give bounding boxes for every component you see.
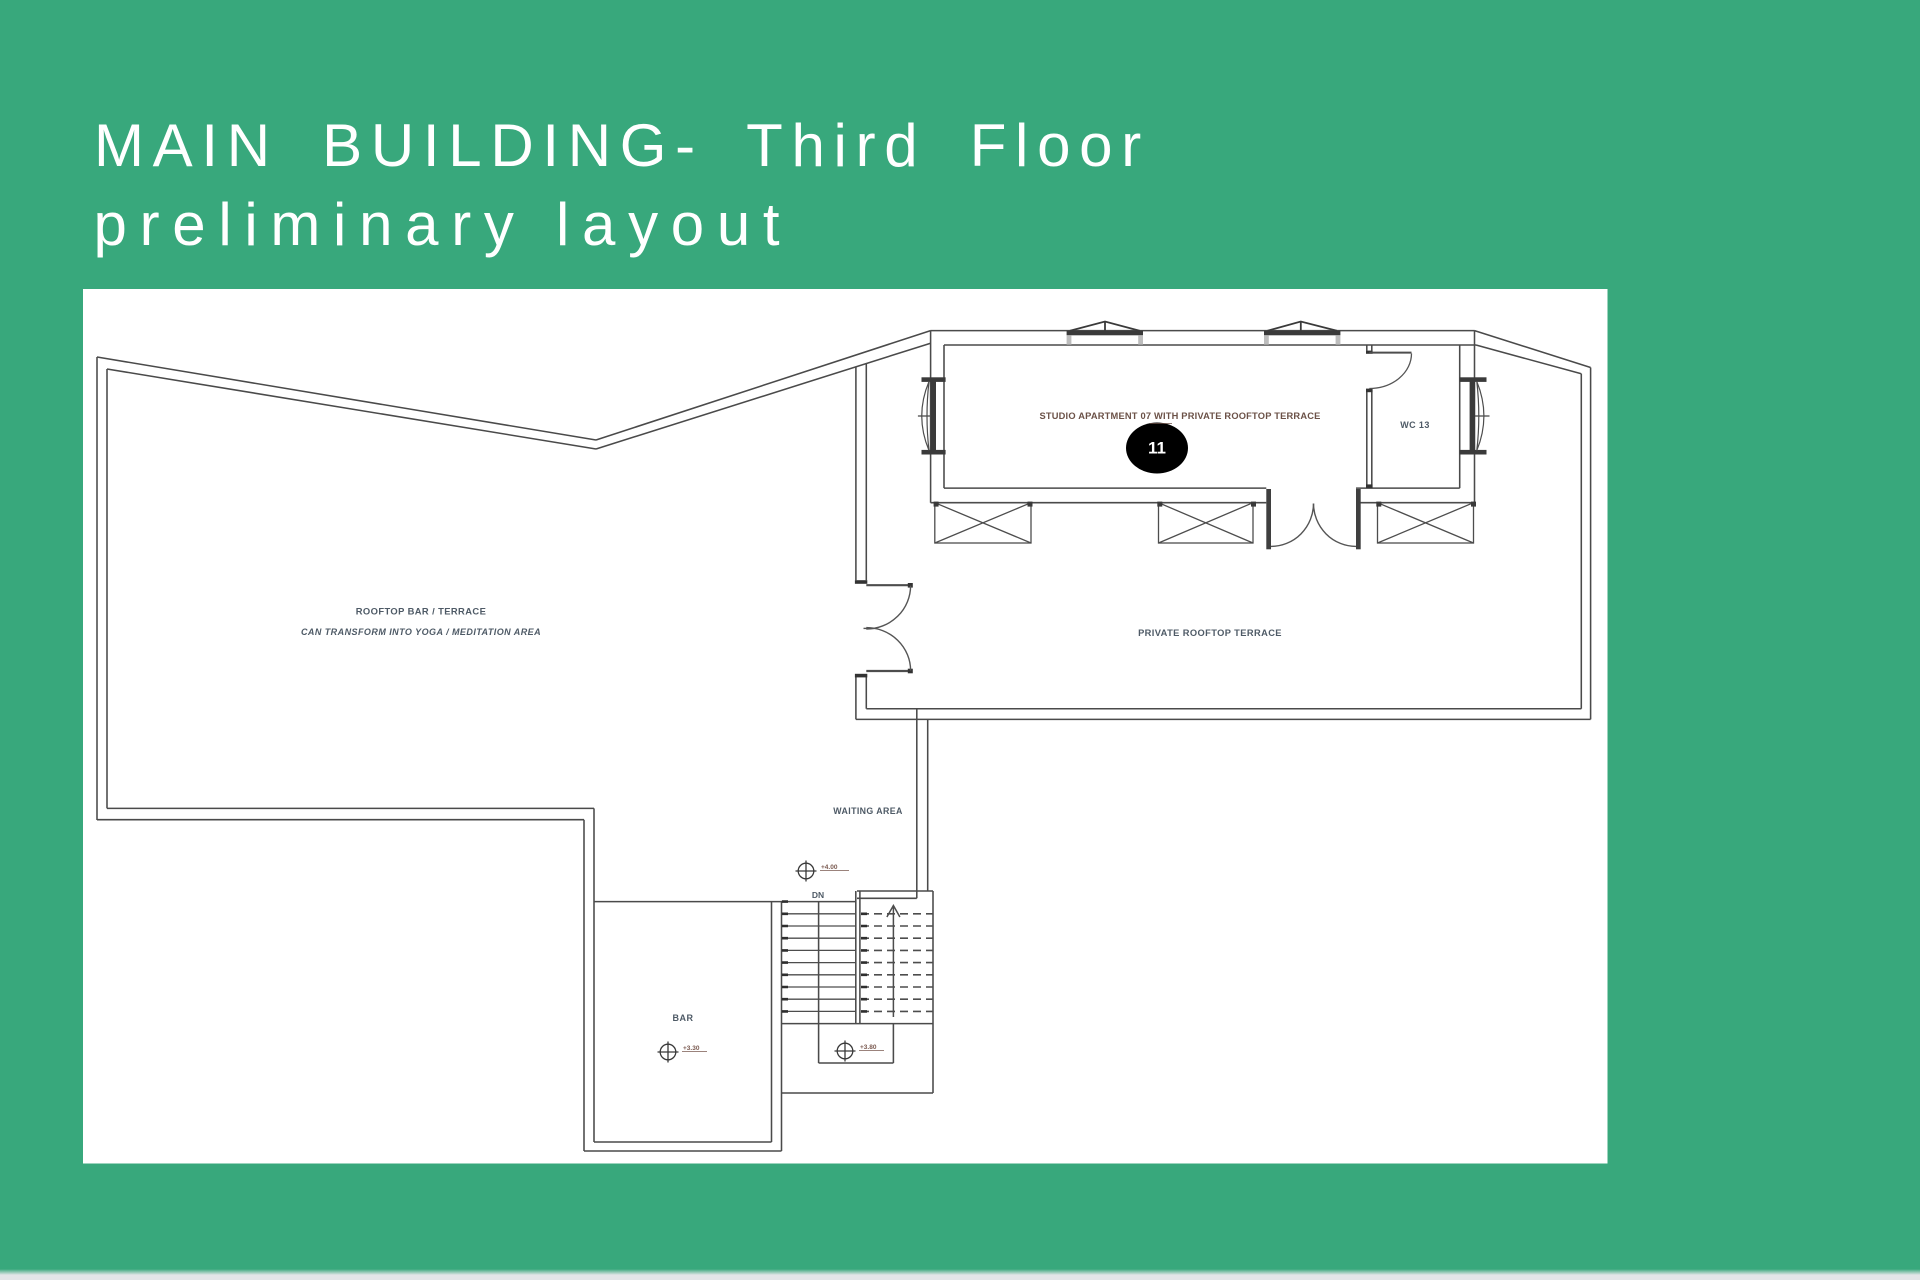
svg-text:PRIVATE ROOFTOP TERRACE: PRIVATE ROOFTOP TERRACE [1138, 628, 1282, 638]
svg-text:+3.30: +3.30 [683, 1045, 700, 1052]
svg-text:11: 11 [1148, 439, 1166, 458]
svg-text:+4.00: +4.00 [821, 864, 838, 871]
svg-text:DN: DN [812, 890, 824, 900]
svg-text:ROOFTOP BAR / TERRACE: ROOFTOP BAR / TERRACE [356, 606, 486, 617]
svg-text:+3.80: +3.80 [860, 1044, 877, 1051]
svg-text:WC 13: WC 13 [1400, 420, 1430, 430]
svg-text:CAN TRANSFORM INTO YOGA / MEDI: CAN TRANSFORM INTO YOGA / MEDITATION ARE… [301, 627, 541, 637]
svg-text:WAITING AREA: WAITING AREA [833, 806, 903, 816]
svg-text:STUDIO APARTMENT 07 WITH PRIVA: STUDIO APARTMENT 07 WITH PRIVATE ROOFTOP… [1039, 411, 1320, 421]
svg-text:BAR: BAR [673, 1013, 694, 1023]
